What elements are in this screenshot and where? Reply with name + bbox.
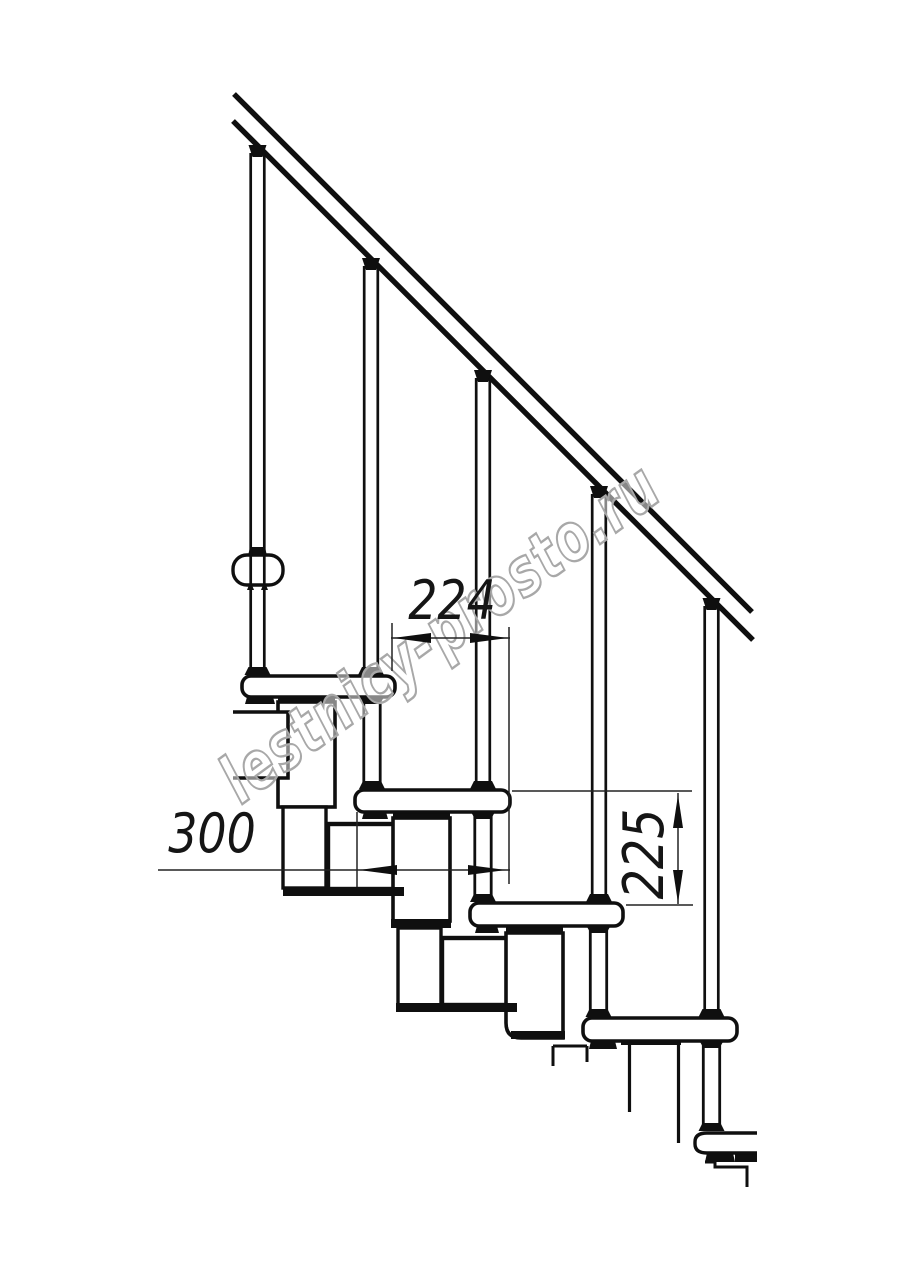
step-tread-3	[355, 790, 510, 812]
stair-structure-layer	[233, 94, 757, 1187]
step-tread-6	[695, 1133, 757, 1153]
staircase-side-view-drawing: lestnicy-prosto.ru 224 300 225	[0, 0, 914, 1280]
connector-plate	[506, 927, 563, 933]
baluster-1	[245, 145, 271, 675]
clamp-nut	[589, 1041, 617, 1049]
step-bolt	[470, 812, 496, 902]
connector-plate	[396, 1003, 517, 1012]
step-tread-4	[470, 903, 623, 926]
baluster-2	[358, 258, 384, 675]
watermark-text: lestnicy-prosto.ru	[205, 447, 674, 817]
step-bolt	[586, 926, 612, 1017]
clamp-nut	[362, 812, 388, 819]
support-module-box	[283, 807, 326, 888]
connector-plate	[391, 919, 451, 928]
support-module-box	[506, 933, 563, 1038]
clamp-nut	[245, 697, 275, 704]
step-tread-5	[583, 1018, 737, 1041]
clamp-nut	[475, 926, 499, 933]
baluster-5	[699, 598, 725, 1017]
dimension-label-300: 300	[168, 801, 256, 865]
connector-plate	[511, 1031, 565, 1039]
break-line	[705, 1162, 747, 1187]
dimension-label-224: 224	[408, 568, 496, 632]
connector-plate	[283, 887, 404, 896]
step-tread-1	[233, 555, 283, 585]
step-bolt	[699, 1041, 725, 1131]
support-module-box	[398, 928, 441, 1005]
dimension-arrow	[468, 865, 506, 875]
dimension-label-225: 225	[612, 809, 677, 900]
technical-drawing-page: lestnicy-prosto.ru 224 300 225	[0, 0, 914, 1280]
